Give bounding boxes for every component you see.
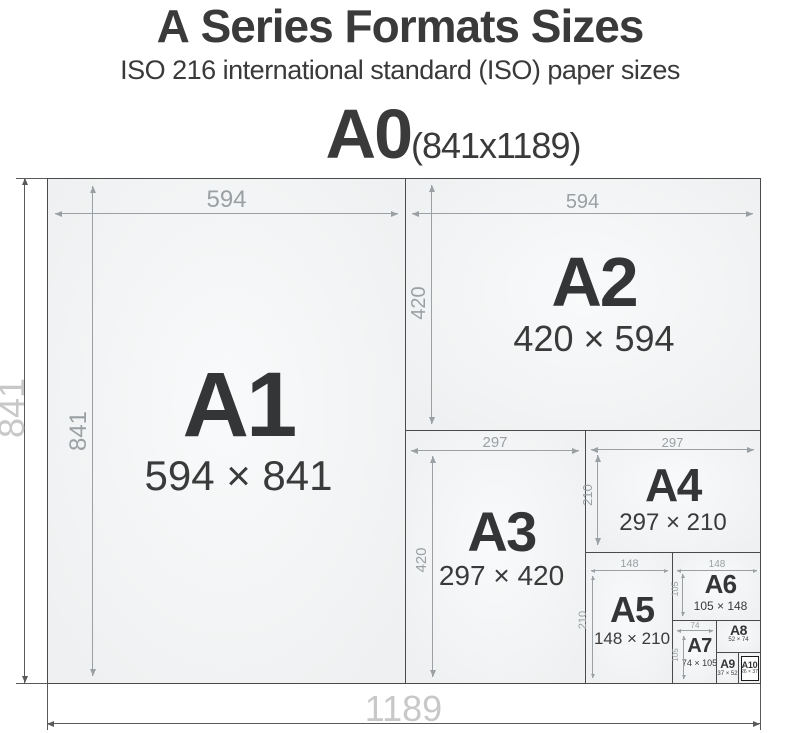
a1-height-dim-line <box>92 186 93 676</box>
paper-a10-size: 26 × 37 <box>741 669 758 675</box>
paper-a9-label: A9 <box>720 659 735 670</box>
a1-width-dim-label: 594 <box>55 186 398 214</box>
paper-a2: A2 420 × 594 <box>405 178 761 431</box>
paper-a5-content: A5 148 × 210 <box>588 587 670 649</box>
paper-a3-size: 297 × 420 <box>439 560 564 592</box>
paper-a4-content: A4 297 × 210 <box>619 446 726 538</box>
a7-height-dim-label: 105 <box>664 625 688 685</box>
paper-size-diagram: A1 594 × 841 A2 420 × 594 A3 297 × 420 A… <box>0 0 800 733</box>
a6-width-dim-line <box>677 570 757 571</box>
a4-width-dim-label: 297 <box>591 435 754 450</box>
paper-a1: A1 594 × 841 <box>47 178 406 684</box>
paper-a3-label: A3 <box>467 505 535 558</box>
a4-height-dim-label: 210 <box>576 465 600 525</box>
paper-a5-label: A5 <box>610 593 654 627</box>
paper-a9-content: A9 37 × 52 <box>717 659 737 676</box>
a3-width-dim-label: 297 <box>411 434 579 451</box>
paper-a10-label: A10 <box>742 661 758 670</box>
outer-width-dim-label: 1189 <box>47 688 760 730</box>
a1-height-dim-label: 841 <box>67 401 91 461</box>
a2-width-dim-label: 594 <box>412 191 753 214</box>
dim-extension-width-right <box>760 684 761 730</box>
paper-a6-size: 105 × 148 <box>694 599 748 613</box>
paper-a4-size: 297 × 210 <box>619 509 726 537</box>
a5-height-dim-label: 210 <box>571 590 595 650</box>
a5-width-dim-line <box>591 570 668 571</box>
outer-height-dim-label: 841 <box>0 368 25 448</box>
paper-a2-size: 420 × 594 <box>513 318 674 360</box>
paper-a3-content: A3 297 × 420 <box>427 505 564 609</box>
paper-a6-label: A6 <box>705 572 737 597</box>
page: A Series Formats Sizes ISO 216 internati… <box>0 0 800 733</box>
paper-a5: A5 148 × 210 <box>585 552 673 684</box>
paper-a1-label: A1 <box>182 362 294 449</box>
paper-a8-label: A8 <box>730 624 747 637</box>
paper-a2-content: A2 420 × 594 <box>491 249 674 360</box>
paper-a9: A9 37 × 52 <box>716 652 739 684</box>
a6-height-dim-label: 105 <box>663 559 687 619</box>
paper-a10: A10 26 × 37 <box>738 652 761 684</box>
a6-width-dim-label: 148 <box>677 559 757 570</box>
paper-a8: A8 52 × 74 <box>716 620 761 653</box>
a2-height-dim-label: 420 <box>407 273 431 333</box>
a5-width-dim-label: 148 <box>591 558 668 570</box>
paper-a8-size: 52 × 74 <box>728 637 748 643</box>
paper-a4-label: A4 <box>645 464 701 508</box>
paper-a1-size: 594 × 841 <box>144 452 332 500</box>
a3-height-dim-label: 420 <box>410 530 434 590</box>
paper-a8-content: A8 52 × 74 <box>728 624 748 649</box>
a2-height-dim-line <box>431 185 432 424</box>
paper-a1-content: A1 594 × 841 <box>120 362 332 499</box>
paper-a2-label: A2 <box>551 249 636 316</box>
dim-extension-bottom-left <box>16 683 47 684</box>
paper-a5-size: 148 × 210 <box>594 629 670 649</box>
paper-a10-box: A10 26 × 37 <box>741 656 759 681</box>
paper-a9-size: 37 × 52 <box>717 671 737 677</box>
paper-a7-label: A7 <box>687 637 711 656</box>
